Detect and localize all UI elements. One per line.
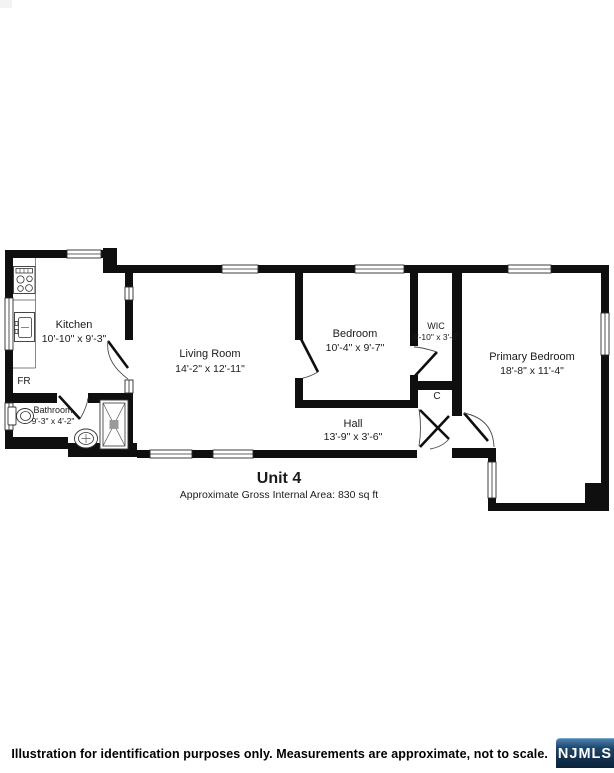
kitchen-sink-icon [15, 313, 35, 342]
door-arc [430, 439, 449, 449]
plan-title-block: Unit 4 Approximate Gross Internal Area: … [180, 470, 379, 501]
shower-icon [100, 400, 128, 449]
door-leaf [301, 339, 318, 372]
stove-icon [14, 267, 36, 294]
window [125, 287, 133, 300]
unit-title: Unit 4 [257, 470, 302, 487]
floor-plan-svg: Kitchen 10'-10" x 9'-3" Living Room 14'-… [0, 0, 614, 768]
walls [5, 248, 609, 511]
door-arc [303, 372, 318, 378]
scan-artifact [0, 0, 12, 8]
room-label-bathroom: Bathroom [33, 405, 72, 415]
shower-drain [110, 420, 119, 429]
room-label-kitchen: Kitchen [56, 319, 93, 331]
room-label-bedroom: Bedroom [333, 328, 378, 340]
door-arc [419, 409, 421, 446]
room-dims-living-room: 14'-2" x 12'-11" [175, 363, 245, 375]
door-arc [80, 398, 88, 419]
room-dims-wic: 8'-10" x 3'-6" [412, 332, 460, 342]
room-dims-bathroom: 9'-3" x 4'-2" [32, 416, 75, 426]
room-label-wic: WIC [427, 321, 445, 331]
njmls-logo-text: NJMLS [558, 746, 612, 762]
door-arc [414, 347, 437, 352]
room-label-primary-bedroom: Primary Bedroom [489, 351, 575, 363]
room-dims-primary-bedroom: 18'-8" x 11'-4" [500, 365, 564, 377]
window [67, 250, 101, 258]
closet-label: C [433, 391, 440, 402]
window [5, 298, 13, 350]
door-hinge-block [452, 404, 462, 416]
fridge-label: FR [17, 376, 30, 387]
window [355, 265, 404, 273]
njmls-logo: NJMLS [556, 738, 614, 768]
room-dims-bedroom: 10'-4" x 9'-7" [326, 342, 385, 354]
door-leaf [414, 352, 437, 377]
window [213, 450, 253, 458]
door-leaf [420, 416, 449, 447]
area-note: Approximate Gross Internal Area: 830 sq … [180, 489, 379, 501]
door-leaf [108, 341, 128, 368]
toilet-icon [8, 407, 34, 425]
floor-plan-page: Kitchen 10'-10" x 9'-3" Living Room 14'-… [0, 0, 614, 768]
window [222, 265, 258, 273]
window [601, 313, 609, 355]
room-dims-hall: 13'-9" x 3'-6" [324, 431, 383, 443]
room-label-hall: Hall [344, 418, 363, 430]
room-label-living-room: Living Room [179, 348, 240, 360]
window [488, 462, 496, 498]
door-leaf [420, 410, 449, 439]
window [508, 265, 551, 273]
window [150, 450, 192, 458]
pedestal-sink-icon [75, 429, 98, 448]
window [125, 380, 133, 393]
room-dims-kitchen: 10'-10" x 9'-3" [42, 333, 107, 345]
footer-disclaimer: Illustration for identification purposes… [11, 747, 548, 761]
